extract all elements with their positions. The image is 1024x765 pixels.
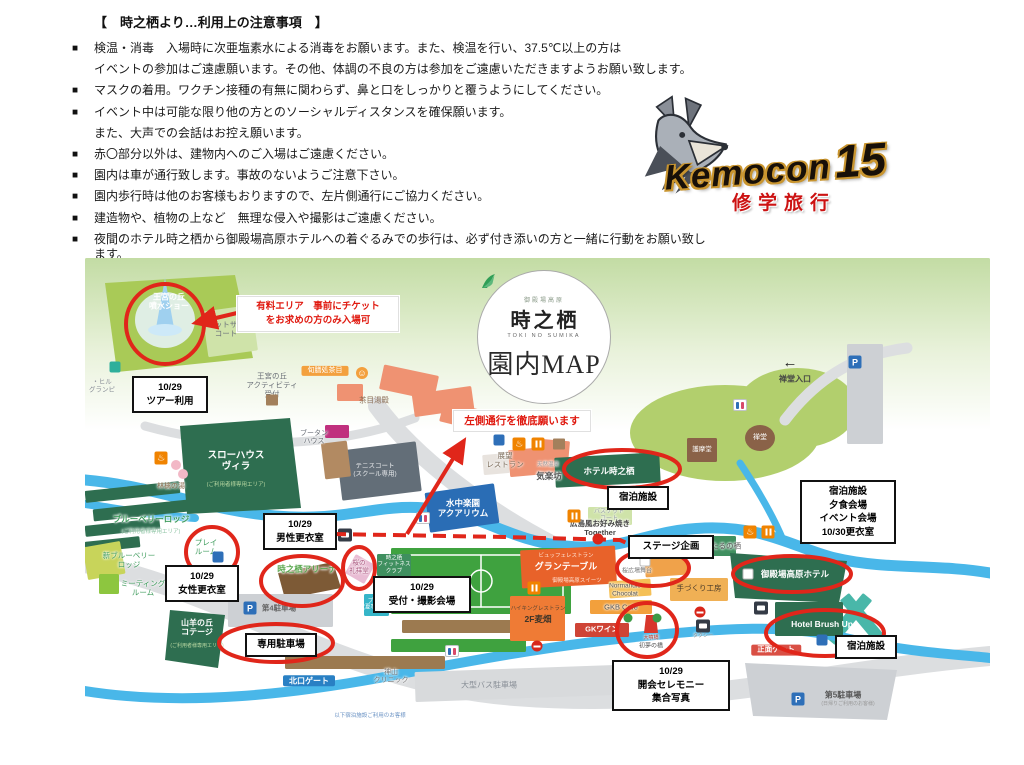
map-place-label: 林檎の湯 [157,483,185,491]
notice-text: 園内歩行時は他のお客様もおりますので、左片側通行にご協力ください。 [94,189,489,204]
highlight-circle [261,556,343,606]
map-shape [510,596,565,641]
wc-icon [733,399,747,411]
map-shape [391,548,571,614]
notice-text: 園内は車が通行致します。事故のないようご注意下さい。 [94,168,405,183]
brand-region: 御殿場高原 [478,295,610,304]
map-shape [285,656,445,669]
highlight-circle [733,556,851,592]
logo-subtitle: 修学旅行 [732,188,836,215]
notice-text: 建造物や、植物の上など 無理な侵入や撮影はご遠慮ください。 [94,211,442,226]
wc-icon [416,512,430,524]
page: 【 時之栖より…利用上の注意事項 】 ■検温・消毒 入場時に次亜塩素水による消毒… [0,0,1024,765]
brown-icon [553,439,565,450]
map-shape [785,348,907,420]
onsen-icon: ♨ [155,452,168,465]
bullet-icon: ■ [72,232,94,247]
notice-line: ■夜間のホテル時之栖から御殿場高原ホテルへの着ぐるみでの歩行は、必ず付き添いの方… [72,232,712,253]
bullet-icon: ■ [72,147,94,162]
map-place-label: 大噴橋 [643,636,658,642]
map-place-label: 広島風お好み焼き Together [570,520,630,538]
map-title: 園内MAP [478,344,610,381]
map-shape [99,574,119,594]
map-shape [148,324,182,336]
map-place-label: 王宮の丘 噴水ショー [149,293,189,312]
map-place-label: フットサル コート [207,321,245,339]
map-place-label: スローハウス ヴィラ [208,450,265,472]
notice-line: ■マスクの着用。ワクチン接種の有無に関わらず、鼻と口をしっかりと覆うようにしてく… [72,83,712,104]
map-place-label: (ご利用者様専用エリア) [170,644,223,650]
map-place-label: 神山 クリニック [374,669,409,686]
map-shape [399,555,563,607]
map-callout-label: 宿泊施設 [607,486,669,510]
map-shape [93,499,199,522]
map-shape [415,664,646,702]
white-icon [640,556,651,567]
notice-text: 検温・消毒 入場時に次亜塩素水による消毒をお願います。また、検温を行い、37.5… [94,41,621,56]
map-place-label: 気楽坊 [536,471,562,481]
map-place-label: 旬膳処茶目 [302,366,349,376]
map-place-label: 第5駐車場 [825,690,861,699]
map-shape [85,629,990,698]
map-shape [379,364,439,400]
map-callout-label: 10/29 男性更衣室 [263,513,337,550]
map-shape [644,557,687,578]
notice-text: 赤〇部分以外は、建物内へのご入場はご遠慮ください。 [94,147,394,162]
map-red-note: 左側通行を徹底願います [453,410,591,432]
map-shape [840,593,886,645]
onsen-icon: ♨ [744,526,757,539]
blue-icon [494,435,505,446]
map-place-label: グランテーブル [535,562,597,573]
map-shape [745,663,897,720]
food-icon [762,526,775,539]
kemocon-logo: Kemocon 15 修学旅行 [636,90,916,220]
map-shape [687,438,717,462]
notices-title: 【 時之栖より…利用上の注意事項 】 [94,12,712,31]
nosign-icon [532,641,543,652]
map-callout-label: 宿泊施設 [835,635,897,659]
map-shape [321,441,351,480]
pointer-arrow [407,444,462,534]
map-shape [470,570,492,592]
nosign-icon [695,607,706,618]
map-shape [630,385,820,481]
highlight-circle [617,550,689,586]
bus-icon [338,529,352,542]
smile-icon: ☺ [356,367,368,379]
bullet-icon: ■ [72,189,94,204]
map-place-label: GKワイン [585,626,619,635]
map-shape [391,639,526,652]
map-place-label: 天然温泉 [537,462,559,468]
p-icon: P [244,602,257,615]
map-shape [278,562,341,599]
map-place-label: 新ブルーベリー ロッジ [103,552,156,570]
p-icon: P [792,693,805,706]
map-shape [85,541,126,580]
notice-line: ■検温・消毒 入場時に次亜塩素水による消毒をお願います。また、検温を行い、37.… [72,41,712,62]
map-callout-label: 10/29 受付・撮影会場 [373,576,471,613]
map-place-label: バスケット コート [594,509,624,523]
map-shape [670,578,728,601]
highlight-circle [219,624,333,662]
map-place-label: ブルーベリーロッジ [113,514,190,524]
map-place-label: 時之栖 フィットネス クラブ [378,555,411,574]
map-shape [337,384,363,401]
map-shape [536,439,570,466]
map-place-label: ホテル時之栖 [583,466,634,476]
logo-number: 15 [833,132,888,187]
map-shape [402,620,527,633]
map-shape [135,292,195,348]
white-icon [743,569,754,580]
food-icon [532,438,545,451]
bus-icon [696,620,710,633]
map-callout-label: 10/29 ツアー利用 [132,376,208,413]
notice-text: また、大声での会話はお控え願います。 [94,126,309,141]
map-place-label: (ご利用者様専用エリア) [122,529,181,535]
map-place-label: 御殿場高原スイーツ [552,578,601,584]
pointer-arrow [199,313,237,322]
brand-name-text: 時之栖 [511,310,580,332]
map-shape [85,518,160,537]
map-place-label: (日帰りご利用のお客様) [821,702,874,708]
map-shape [425,483,500,532]
map-shape [590,600,652,614]
map-place-label: 茶目湯殿 [359,397,389,406]
map-shape [325,425,349,438]
map-place-label: 手づくり工房 [677,585,722,594]
map-shape [737,368,857,448]
nosign-icon [593,534,604,545]
notice-line: イベントの参加はご遠慮願います。その他、体調の不良の方は参加をご遠慮いただきます… [72,62,712,83]
map-shape [345,554,375,584]
bullet-icon: ■ [72,105,94,120]
notice-text: イベント中は可能な限り他の方とのソーシャルディスタンスを確保願います。 [94,105,511,120]
map-place-label: テニスコート (スクール専用) [353,462,396,477]
notices-list: ■検温・消毒 入場時に次亜塩素水による消毒をお願います。また、検温を行い、37.… [72,41,712,253]
notice-line: ■イベント中は可能な限り他の方とのソーシャルディスタンスを確保願います。 [72,105,712,126]
map-callout-label: 10/29 女性更衣室 [165,565,239,602]
bullet-icon: ■ [72,211,94,226]
map-shape [482,453,510,475]
map-place-label: プレイ ルーム [195,539,218,557]
notice-line: ■建造物や、植物の上など 無理な侵入や撮影はご遠慮ください。 [72,211,712,232]
map-place-label: (ご利用者様専用エリア) [207,482,266,488]
notice-text: マスクの着用。ワクチン接種の有無に関わらず、鼻と口をしっかりと覆うようにしてくだ… [94,83,608,98]
blue-icon [817,635,828,646]
pink-icon [171,460,181,470]
map-place-label: たるの栖 [711,543,741,552]
map-shape [364,594,389,616]
map-place-label: ・ヒル グランピ [89,378,115,393]
map-callout-label: 10/29 開会セレモニー 集合写真 [612,660,730,711]
highlight-circle [343,547,375,589]
map-shape [85,563,990,699]
map-place-label: 展望 レストラン [486,452,524,470]
map-place-label: 水中楽園 アクアリウム [438,498,489,518]
map-shape [85,504,195,518]
bullet-icon: ■ [72,83,94,98]
teal-icon [110,362,121,373]
map-shape [85,481,180,503]
map-place-label: プール (夏季限定) [363,599,389,612]
map-place-label: 第4駐車場 [262,605,296,614]
map-place-label: ミーティング ルーム [121,580,166,598]
highlight-circle [126,284,204,364]
map-shape [520,546,617,589]
map-shape [180,418,301,514]
map-shape [412,386,475,417]
tree-icon [653,614,662,623]
notices-section: 【 時之栖より…利用上の注意事項 】 ■検温・消毒 入場時に次亜塩素水による消毒… [72,12,712,253]
highlight-circle [564,450,680,488]
map-place-label: ブータン ハウス [300,430,328,447]
notice-text: イベントの参加はご遠慮願います。その他、体調の不良の方は参加をご遠慮いただきます… [94,62,692,77]
bus-icon [754,602,768,615]
brand-name: 時之栖 [478,304,610,333]
map-shape [336,441,421,500]
map-shape [554,452,660,487]
food-icon [568,510,581,523]
map-shape [439,401,489,433]
notice-line: また、大声での会話はお控え願います。 [72,126,712,147]
map-shape [85,480,990,573]
map-callout-label: ステージ企画 [628,535,714,559]
map-place-label: タクシー [693,634,713,640]
map-place-label: 桜の 礼拝堂 [349,559,369,574]
route-dashed-line [333,534,647,552]
map-shape [826,593,872,645]
map-shape [145,418,415,443]
map-shape [740,463,783,540]
notice-line: ■園内歩行時は他のお客様もおりますので、左片側通行にご協力ください。 [72,189,712,210]
map-shape [377,406,555,546]
map-place-label: 王宮の丘 アクティビティ 受付 [246,373,297,400]
map-shape [730,553,847,603]
map-place-label: ← [783,354,798,372]
map-shape [202,305,258,358]
highlight-circle [186,527,238,577]
map-shape [508,446,560,477]
map-place-label: 禅堂入口 [779,374,811,383]
map-place-label: 初夢の橋 [639,643,663,650]
map-place-label: 禅堂 [753,434,767,442]
map-shape [156,278,174,328]
highlight-circle [766,610,884,656]
map-legend-circle: 御殿場高原 時之栖 TOKI NO SUMIKA 園内MAP [477,270,611,404]
map-shape [710,536,736,556]
map-shape [165,610,225,668]
map-shape [105,275,253,372]
map-place-label: 御殿場高原ホテル [761,569,829,579]
map-shape [588,507,632,525]
blue-icon [213,552,224,563]
map-place-label: GKB Cafe [604,604,638,613]
map-callout-label: 専用駐車場 [245,633,317,657]
highlight-circle [617,603,677,657]
bullet-icon: ■ [72,168,94,183]
map-place-label: 北口ゲート [283,675,335,686]
map-shape [608,579,651,599]
tree-icon [624,614,633,623]
map-place-label: 時之栖アリーナ [277,564,337,574]
map-shape [847,344,883,444]
wc-icon [445,645,459,657]
map-shape [745,425,775,451]
notice-line: ■園内は車が通行致します。事故のないようご注意下さい。 [72,168,712,189]
map-place-label: 正面ゲート [751,645,801,656]
map-place-label: 2F麦畑 [525,614,552,624]
p-icon: P [849,356,862,369]
map-place-label: 大型バス駐車場 [461,680,517,689]
bridge-icon [644,615,658,633]
map-place-label: 山羊の丘 コテージ [181,619,213,638]
map-place-label: 護摩堂 [692,446,712,454]
map-shape [85,536,140,553]
map-shape [775,602,843,636]
notice-line: ■赤〇部分以外は、建物内へのご入場はご遠慮ください。 [72,147,712,168]
park-map: 王宮の丘 噴水ショーフットサル コート・ヒル グランピ王宮の丘 アクティビティ … [85,258,990,755]
map-place-label: 桜広場舞台 [622,568,652,575]
brand-roman: TOKI NO SUMIKA [478,333,610,339]
bullet-icon: ■ [72,41,94,56]
pink-icon [178,469,188,479]
onsen-icon: ♨ [513,438,526,451]
map-place-label: Hotel Brush Up [791,619,853,629]
map-place-label: Normandie Chocolat [609,582,641,597]
map-red-note: 有料エリア 事前にチケット をお求めの方のみ入場可 [237,296,399,332]
map-shape [377,554,411,576]
map-shape [575,623,629,637]
map-place-label: 以下宿泊施設ご利用のお客様 [334,713,406,719]
food-icon [528,582,541,595]
map-callout-label: 宿泊施設 夕食会場 イベント会場 10/30更衣室 [800,480,896,544]
map-shape [228,594,333,627]
map-place-label: ハイキングレストラン [511,606,566,612]
map-place-label: ビュッフェレストラン [538,553,593,559]
brown-icon [266,395,278,406]
